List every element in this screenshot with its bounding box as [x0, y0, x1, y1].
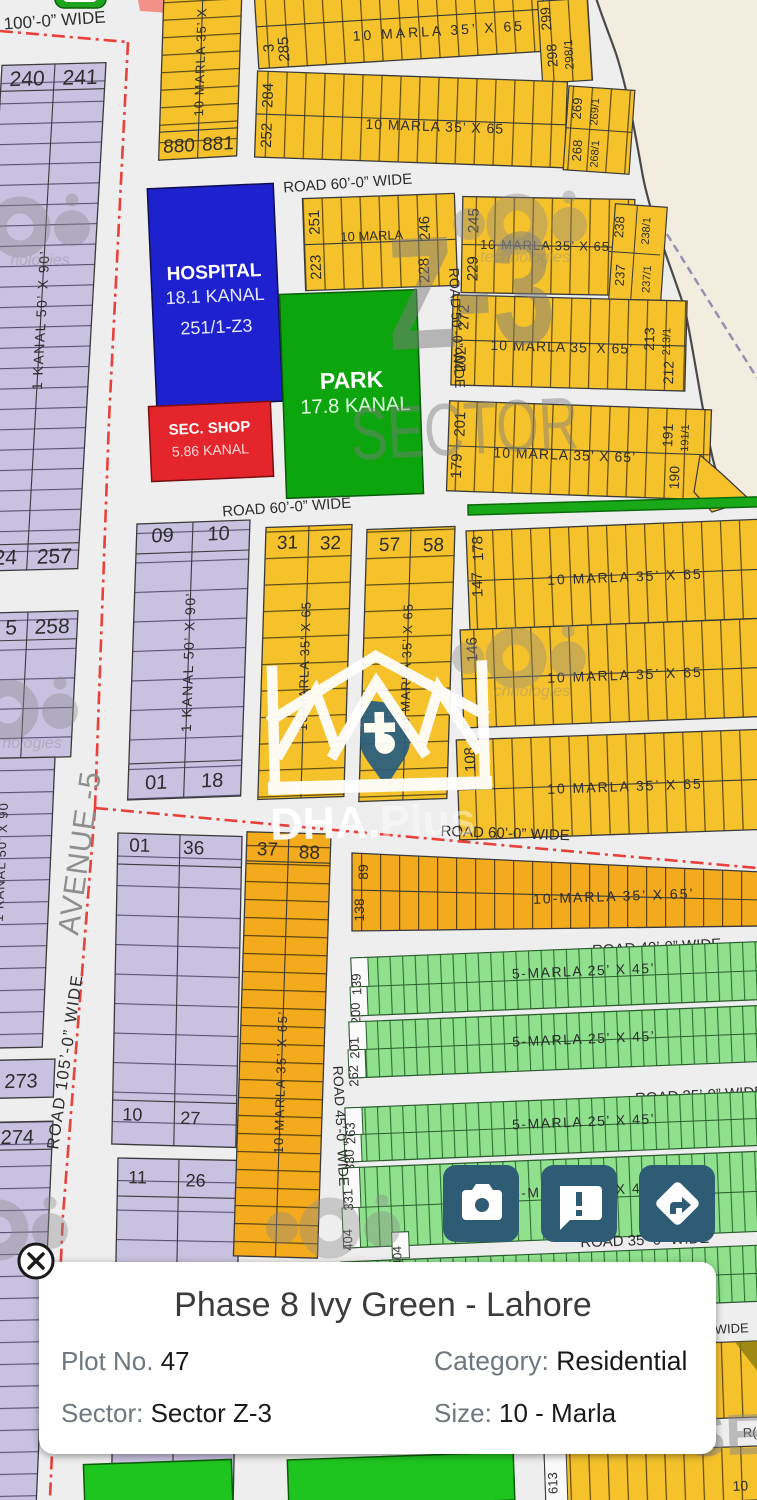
svg-text:178: 178: [469, 536, 487, 562]
svg-text:298: 298: [543, 43, 560, 68]
svg-text:01: 01: [145, 772, 168, 795]
svg-text:262: 262: [346, 1065, 362, 1087]
svg-text:238/1: 238/1: [640, 217, 654, 245]
svg-text:5.86 KANAL: 5.86 KANAL: [172, 440, 250, 459]
svg-text:DHA.: DHA.: [269, 796, 380, 850]
svg-text:WIDE: WIDE: [714, 1320, 749, 1337]
svg-text:201: 201: [346, 1037, 362, 1059]
svg-text:5: 5: [5, 616, 18, 639]
svg-text:36: 36: [183, 838, 205, 860]
svg-text:Plot No. 47: Plot No. 47: [61, 1346, 190, 1376]
svg-text:Phase 8 Ivy Green - Lahore: Phase 8 Ivy Green - Lahore: [174, 1286, 592, 1324]
svg-text:chnologies: chnologies: [494, 683, 571, 700]
svg-text:251: 251: [306, 209, 324, 235]
svg-text:240: 240: [9, 67, 45, 91]
svg-text:274: 274: [0, 1127, 34, 1150]
svg-text:138: 138: [351, 898, 367, 922]
svg-text:881: 881: [202, 133, 234, 156]
svg-text:268/1: 268/1: [588, 140, 602, 168]
svg-text:11: 11: [128, 1167, 147, 1187]
svg-text:Sector: Sector Z-3: Sector: Sector Z-3: [61, 1398, 272, 1428]
svg-text:18: 18: [201, 770, 224, 793]
svg-text:31: 31: [277, 532, 299, 554]
svg-text:298/1: 298/1: [561, 39, 577, 70]
svg-text:299: 299: [537, 6, 554, 31]
svg-text:10: 10: [207, 523, 230, 546]
svg-text:89: 89: [355, 864, 371, 880]
svg-text:24: 24: [0, 546, 18, 570]
svg-text:213/1: 213/1: [661, 328, 674, 356]
svg-text:269: 269: [569, 97, 585, 120]
svg-text:880: 880: [163, 135, 195, 158]
svg-text:191: 191: [659, 423, 676, 447]
svg-text:258: 258: [34, 615, 70, 639]
svg-text:58: 58: [423, 535, 445, 557]
svg-text:Plus: Plus: [379, 794, 475, 847]
svg-text:273: 273: [4, 1070, 38, 1093]
svg-text:237/1: 237/1: [640, 265, 654, 293]
svg-text:HOSPITAL: HOSPITAL: [166, 260, 262, 285]
svg-text:251/1-Z3: 251/1-Z3: [180, 315, 253, 338]
svg-text:257: 257: [36, 545, 72, 569]
svg-text:241: 241: [62, 66, 98, 90]
svg-text:27: 27: [180, 1108, 200, 1129]
svg-text:57: 57: [379, 534, 401, 556]
svg-text:09: 09: [151, 525, 174, 548]
svg-text:32: 32: [320, 533, 342, 555]
svg-text:284: 284: [259, 83, 277, 109]
svg-text:01: 01: [129, 835, 151, 857]
svg-text:268: 268: [569, 139, 585, 162]
svg-text:285: 285: [275, 36, 293, 62]
svg-text:213: 213: [641, 327, 658, 351]
svg-text:139: 139: [348, 973, 364, 995]
svg-text:SECTOR: SECTOR: [348, 381, 580, 476]
svg-text:252: 252: [258, 123, 276, 149]
svg-text:nologies: nologies: [2, 735, 62, 752]
svg-text:238: 238: [611, 216, 627, 239]
svg-text:PARK: PARK: [319, 366, 384, 394]
svg-text:Size: 10 - Marla: Size: 10 - Marla: [434, 1398, 617, 1428]
svg-text:147: 147: [469, 572, 487, 598]
svg-text:10: 10: [122, 1104, 142, 1125]
svg-text:212: 212: [660, 360, 677, 384]
svg-text:269/1: 269/1: [588, 98, 602, 126]
svg-text:technologies: technologies: [480, 249, 570, 266]
svg-text:190: 190: [666, 465, 683, 489]
svg-text:nologies: nologies: [10, 252, 70, 269]
svg-text:SEC. SHOP: SEC. SHOP: [168, 418, 250, 439]
svg-text:237: 237: [612, 264, 628, 287]
svg-text:613: 613: [545, 1472, 561, 1494]
svg-text:10: 10: [732, 1477, 748, 1494]
svg-text:223: 223: [307, 254, 325, 280]
svg-text:Category: Residential: Category: Residential: [434, 1346, 687, 1376]
svg-text:26: 26: [185, 1170, 205, 1190]
svg-text:191/1: 191/1: [679, 424, 692, 452]
